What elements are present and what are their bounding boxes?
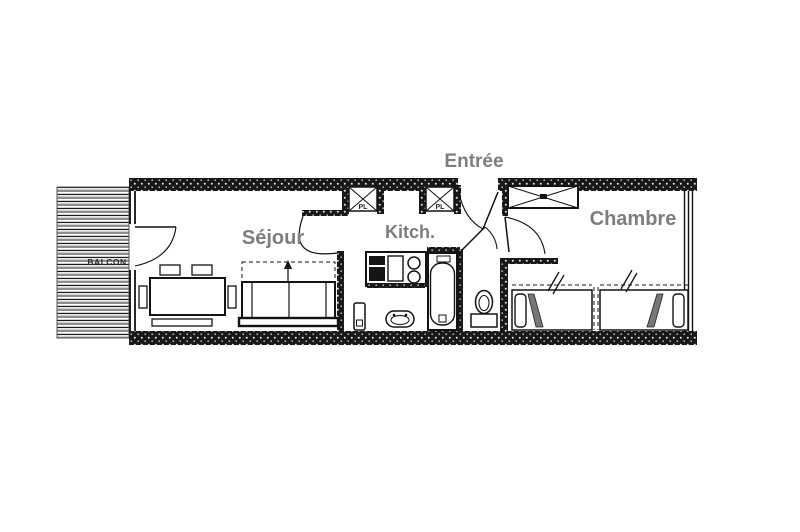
closet-pl-1: PL [349, 187, 377, 211]
floor-plan-drawing: BALCON PL [0, 0, 800, 532]
chair-left [139, 286, 147, 308]
kitchen-counter-edge [367, 283, 425, 288]
chair-top-2 [192, 265, 212, 275]
burner-2 [408, 271, 420, 283]
closet2-post-left [419, 185, 426, 214]
closet2-post-right [454, 185, 461, 214]
entrance-label: Entrée [444, 151, 503, 172]
wall-bottom [129, 331, 697, 345]
bed-left [512, 290, 592, 330]
closet1-post-right [377, 185, 384, 214]
bathtub [428, 253, 457, 330]
kitchen-cupboard [388, 256, 403, 281]
chair-right [228, 286, 236, 308]
bed-left-pillow [515, 294, 526, 327]
kitchen-label: Kitch. [385, 222, 435, 242]
balcony-door [135, 227, 176, 266]
wall-top-left [129, 178, 458, 191]
closet1-post-left [342, 185, 349, 214]
burner-1 [408, 257, 420, 269]
wc-door [462, 227, 497, 250]
closet-pl-2: PL [426, 187, 454, 211]
bed-right [600, 290, 688, 330]
floor-plan-page: BALCON PL [0, 0, 800, 532]
sejour-kitchen-opening [299, 216, 338, 254]
sofa-bed [239, 260, 338, 326]
kitchenette [366, 252, 426, 288]
bed-right-pillow [673, 294, 684, 327]
water-heater [354, 303, 365, 330]
wall-bedroom-stub [508, 258, 558, 264]
wall-left-glazing [130, 191, 135, 331]
living-room-furniture [139, 260, 338, 326]
fridge-oven-block [369, 256, 385, 281]
dining-table [139, 265, 236, 326]
balcony: BALCON [57, 187, 129, 338]
closet-pl-1-label: PL [359, 204, 369, 211]
bedroom-label: Chambre [590, 208, 677, 230]
bedroom-door [505, 217, 545, 254]
closet-pl-2-label: PL [436, 204, 446, 211]
chair-top-1 [160, 265, 180, 275]
entrance-door [459, 192, 498, 229]
toilet [471, 291, 497, 328]
toilet-tank [471, 314, 497, 327]
bedroom-furniture [512, 270, 688, 330]
wall-bedroom-vertical [500, 258, 508, 332]
sofa-base [239, 318, 338, 326]
living-room-label: Séjour [242, 227, 304, 249]
bathtub-tap [437, 256, 450, 262]
unfold-arrow [284, 260, 292, 269]
hand-basin [386, 311, 414, 327]
bench [152, 319, 212, 326]
balcony-label: BALCON [87, 257, 126, 267]
wall-sejour-stub [302, 210, 348, 216]
bedroom-closet [508, 186, 578, 208]
